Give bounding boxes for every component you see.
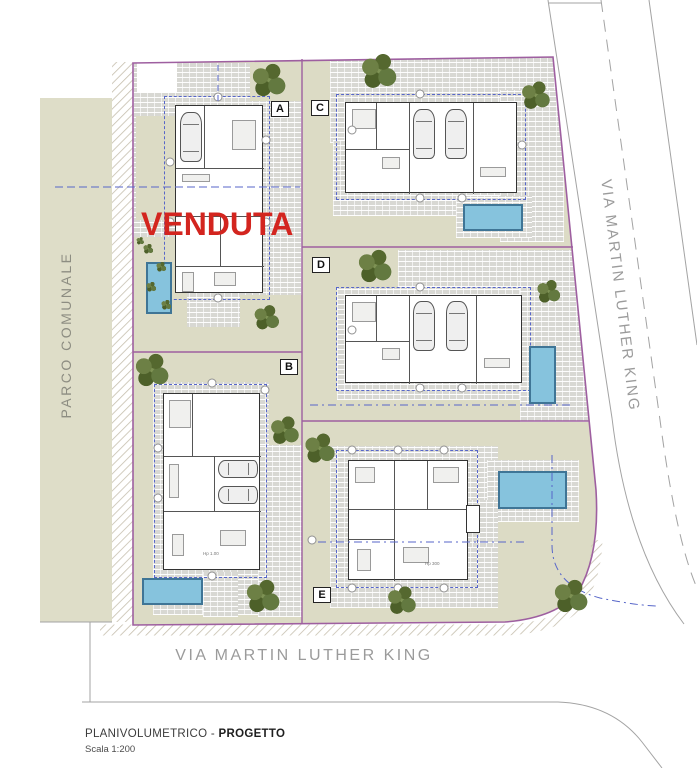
drawing-title-bold: PROGETTO <box>219 728 286 740</box>
dimension-marker <box>262 136 271 145</box>
furniture <box>352 109 376 129</box>
interior-wall <box>376 103 377 149</box>
pool-b <box>142 578 203 605</box>
dimension-marker <box>440 446 449 455</box>
park-label: PARCO COMUNALE <box>58 245 74 425</box>
dimension-marker <box>348 126 357 135</box>
furniture <box>172 534 184 556</box>
pool-e <box>498 471 567 509</box>
dimension-marker <box>308 536 317 545</box>
interior-wall <box>476 296 477 384</box>
interior-wall <box>473 103 474 194</box>
house-d <box>345 295 522 383</box>
car-icon <box>218 460 258 478</box>
furniture <box>169 400 191 428</box>
interior-wall <box>349 539 394 540</box>
dimension-marker <box>518 141 527 150</box>
furniture <box>182 272 194 292</box>
dimension-marker <box>261 386 270 395</box>
pool-a <box>146 262 172 314</box>
interior-wall <box>376 296 377 341</box>
interior-wall <box>409 103 410 194</box>
dimension-marker <box>416 194 425 203</box>
entrance-area <box>137 63 177 93</box>
drawing-scale: Scala 1:200 <box>85 744 135 755</box>
sold-stamp: VENDUTA <box>141 206 293 243</box>
interior-wall <box>349 509 469 510</box>
furniture <box>352 302 376 322</box>
parco-comunale-strip <box>40 98 112 622</box>
dimension-marker <box>348 446 357 455</box>
drawing-title-prefix: PLANIVOLUMETRICO - <box>85 728 219 740</box>
street-bottom-label: VIA MARTIN LUTHER KING <box>144 647 464 665</box>
dimension-marker <box>440 584 449 593</box>
car-icon <box>446 301 468 351</box>
dimension-marker <box>214 93 223 102</box>
furniture <box>382 348 400 360</box>
house-e-annex <box>466 505 480 533</box>
furniture <box>220 530 246 546</box>
site-plan: Hp 300Hp 1.00 <box>0 0 697 768</box>
pool-d <box>529 346 556 404</box>
furniture <box>232 120 256 150</box>
interior-wall <box>409 296 410 384</box>
interior-wall <box>164 511 261 512</box>
dimension-marker <box>348 326 357 335</box>
house-b <box>163 393 260 570</box>
interior-wall <box>176 266 264 267</box>
interior-wall <box>427 461 428 509</box>
interior-wall <box>394 509 395 581</box>
interior-wall <box>394 461 395 509</box>
dimension-marker <box>394 584 403 593</box>
drawing-title: PLANIVOLUMETRICO - PROGETTO <box>85 728 285 740</box>
street-right-label: VIA MARTIN LUTHER KING <box>596 165 645 425</box>
dimension-marker <box>416 90 425 99</box>
dimension-marker <box>214 294 223 303</box>
dimension-marker <box>154 494 163 503</box>
interior-wall <box>192 394 193 456</box>
dimension-marker <box>416 384 425 393</box>
lawn-patch <box>133 327 302 353</box>
dimension-marker <box>166 158 175 167</box>
furniture <box>355 467 375 483</box>
pool-c <box>463 204 523 231</box>
plan-note: Hp 300 <box>425 561 440 566</box>
house-a <box>175 105 263 293</box>
furniture <box>433 467 459 483</box>
car-icon <box>180 112 202 162</box>
dimension-marker <box>458 384 467 393</box>
road-edge-right-outer <box>649 0 697 345</box>
furniture <box>382 157 400 169</box>
dimension-marker <box>154 444 163 453</box>
interior-wall <box>346 149 409 150</box>
house-e <box>348 460 468 580</box>
car-icon <box>218 486 258 504</box>
interior-wall <box>164 456 261 457</box>
interior-wall <box>204 106 205 168</box>
dimension-marker <box>348 584 357 593</box>
car-icon <box>413 301 435 351</box>
dimension-marker <box>416 283 425 292</box>
plan-note: Hp 1.00 <box>203 551 219 556</box>
car-icon <box>413 109 435 159</box>
furniture <box>484 358 510 368</box>
dimension-marker <box>458 194 467 203</box>
furniture <box>480 167 506 177</box>
furniture <box>214 272 236 286</box>
dimension-marker <box>394 446 403 455</box>
car-icon <box>445 109 467 159</box>
interior-wall <box>346 341 409 342</box>
furniture <box>182 174 210 182</box>
furniture <box>169 464 179 498</box>
dimension-marker <box>208 572 217 581</box>
interior-wall <box>214 456 215 511</box>
interior-wall <box>176 168 264 169</box>
furniture <box>357 549 371 571</box>
house-c <box>345 102 517 193</box>
dimension-marker <box>208 379 217 388</box>
